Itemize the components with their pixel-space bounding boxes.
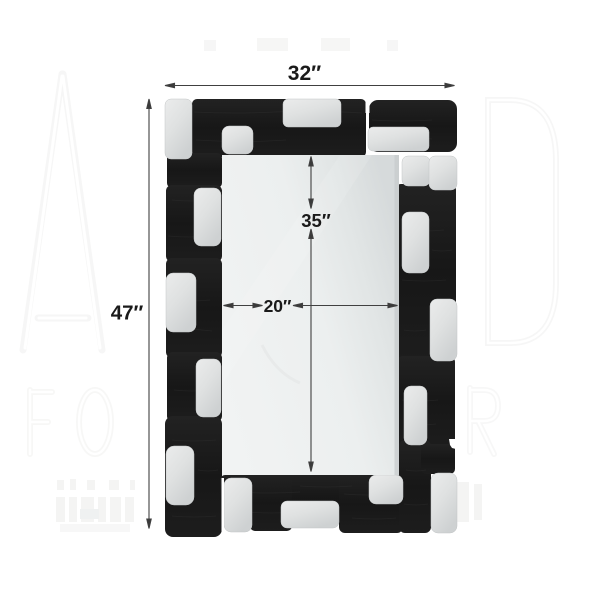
svg-text:47″: 47″ xyxy=(111,302,144,325)
svg-text:35″: 35″ xyxy=(301,210,331,231)
svg-text:20″: 20″ xyxy=(264,296,292,316)
svg-text:32″: 32″ xyxy=(288,62,321,85)
